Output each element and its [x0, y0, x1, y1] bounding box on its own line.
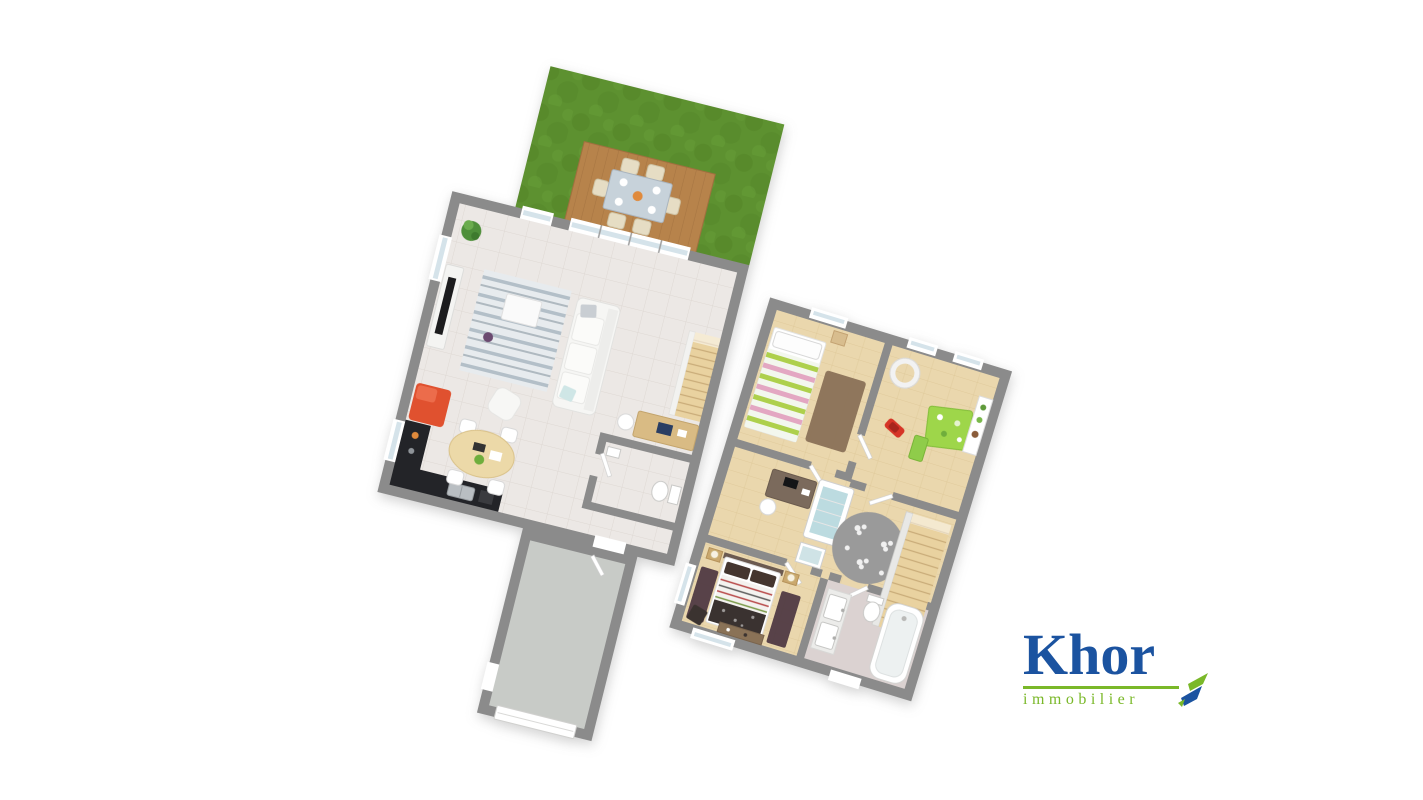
pillow-gray: [580, 304, 596, 318]
brand-logo: Khor immobilier: [1023, 626, 1223, 721]
brand-icon: [1176, 670, 1210, 710]
canvas: Khor immobilier: [0, 0, 1423, 800]
garage: [475, 517, 641, 743]
